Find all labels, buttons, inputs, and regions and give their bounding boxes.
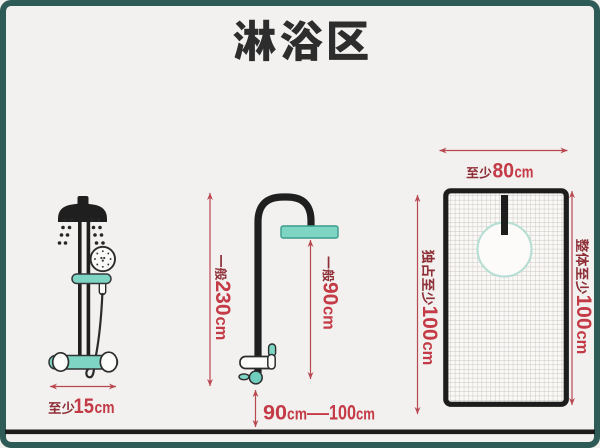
svg-text:cm: cm (287, 406, 307, 424)
svg-text:15: 15 (74, 395, 95, 418)
svg-text:90: 90 (263, 401, 287, 425)
svg-text:cm: cm (573, 331, 591, 355)
svg-text:80: 80 (493, 160, 515, 183)
svg-text:230: 230 (211, 281, 234, 316)
svg-text:100: 100 (572, 295, 595, 330)
svg-text:cm: cm (212, 317, 230, 341)
svg-text:90: 90 (319, 282, 342, 305)
svg-text:100: 100 (418, 306, 441, 341)
svg-text:cm: cm (419, 342, 437, 366)
svg-text:—: — (307, 404, 329, 425)
svg-text:cm: cm (320, 306, 338, 330)
svg-text:cm: cm (356, 406, 375, 424)
svg-text:cm: cm (95, 399, 115, 417)
svg-text:100: 100 (329, 401, 356, 425)
svg-text:cm: cm (515, 164, 534, 182)
